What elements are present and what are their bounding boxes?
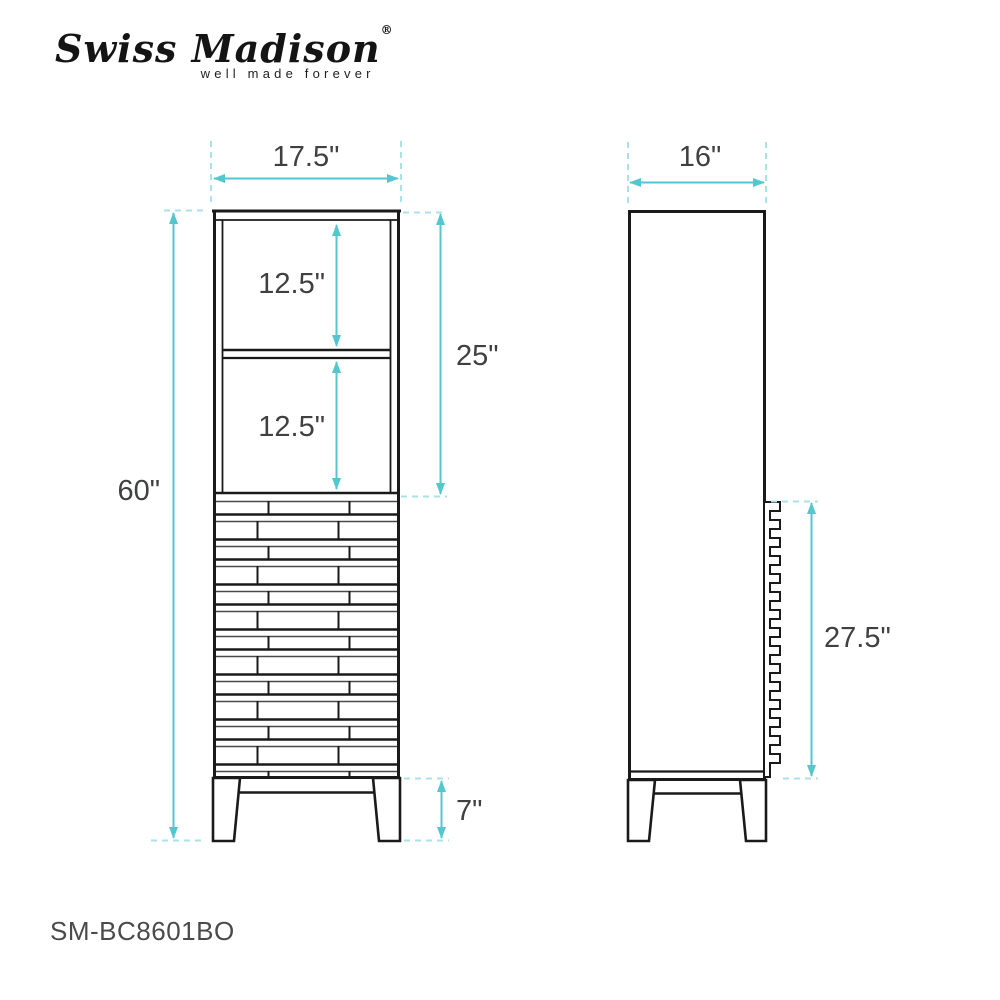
front-right-leg [373,778,400,841]
product-sku: SM-BC8601BO [50,916,235,947]
dim-label: 27.5" [824,622,891,654]
dim-label: 12.5" [258,411,325,443]
dim-label: 16" [679,141,722,173]
dim-label: 12.5" [258,268,325,300]
side-front-leg [628,780,655,841]
dim-front-height: 60" [117,211,208,841]
drawer-slat-texture [213,501,400,777]
dimension-diagram: 17.5" 60" 25" 12.5" 12.5" 7" [0,0,1000,1000]
side-body [630,212,765,780]
dim-label: 60" [117,475,160,507]
spec-sheet: Swiss Madison® well made forever [0,0,1000,1000]
dim-front-width: 17.5" [211,141,401,206]
dim-side-depth: 16" [628,141,766,206]
dim-label: 17.5" [273,141,340,173]
dim-upper-section: 25" [401,213,499,497]
dim-shelf-bottom: 12.5" [258,362,336,489]
drawer-edge-teeth [765,502,780,777]
dim-drawer-section: 27.5" [771,502,891,779]
dim-shelf-top: 12.5" [258,225,336,346]
dim-label: 25" [456,340,499,372]
side-back-leg [740,780,766,841]
front-view [212,210,401,841]
dim-label: 7" [456,795,482,827]
front-left-leg [213,778,240,841]
side-view [628,212,780,842]
dim-leg-height: 7" [404,779,482,841]
